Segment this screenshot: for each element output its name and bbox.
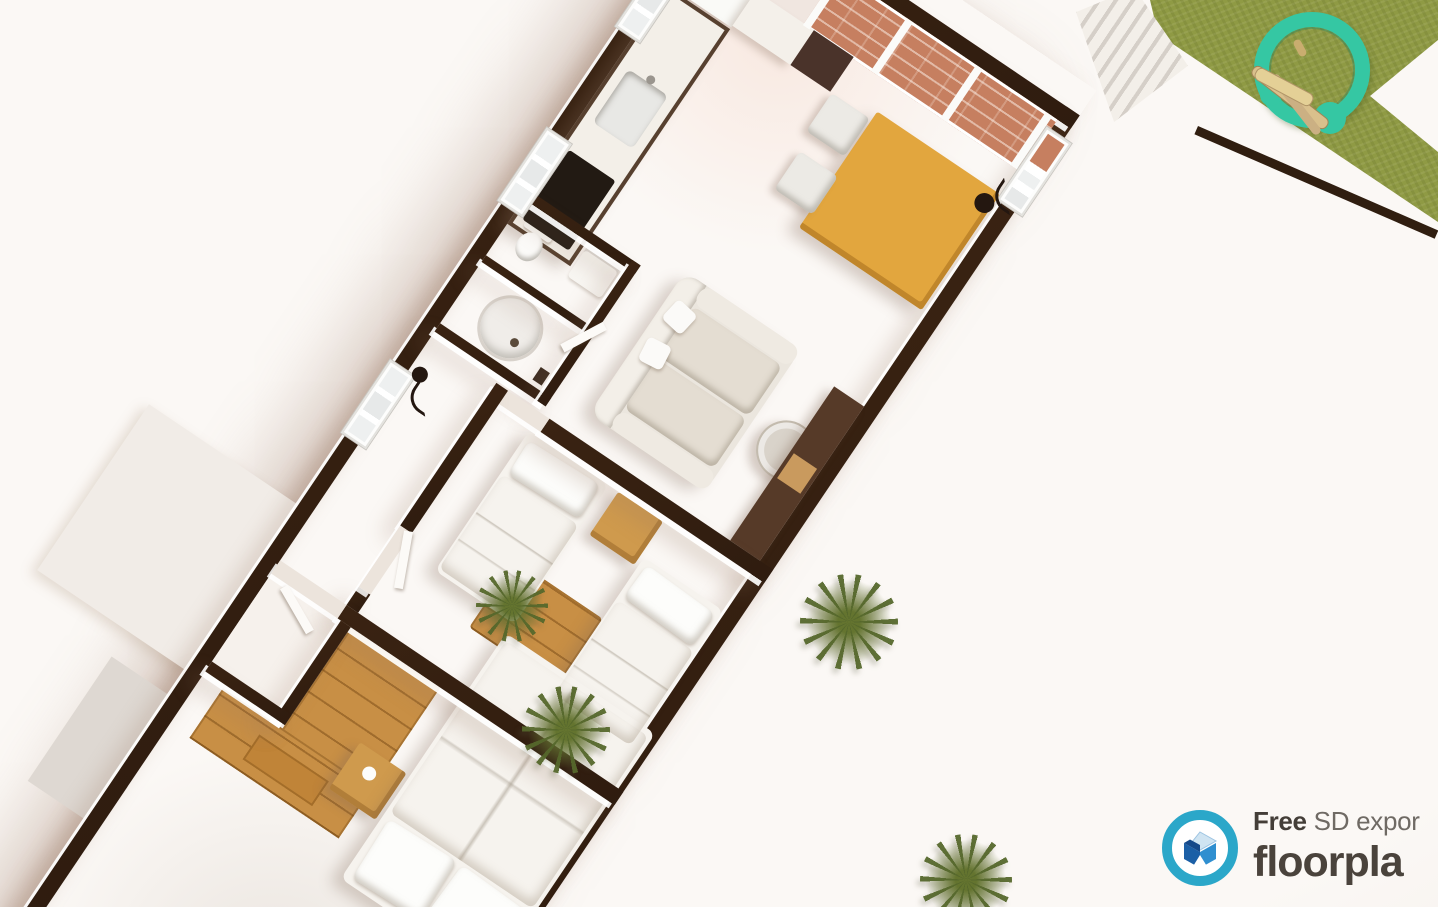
- watermark-text: Free SD expor floorpla: [1253, 806, 1438, 902]
- watermark-brand: floorpla: [1253, 838, 1438, 887]
- floorplanner-logo: [1162, 810, 1238, 886]
- floorplan-render: Free SD expor floorpla: [0, 0, 1438, 907]
- floorplanner-house-icon: [1180, 828, 1220, 868]
- plant-icon: [920, 834, 1012, 907]
- watermark-line1: Free SD expor: [1253, 806, 1438, 837]
- plant-icon: [522, 686, 610, 774]
- plant-icon: [476, 570, 548, 642]
- watermark-free: Free: [1253, 806, 1307, 836]
- watermark-export: SD expor: [1307, 806, 1420, 836]
- plant-icon: [800, 574, 898, 670]
